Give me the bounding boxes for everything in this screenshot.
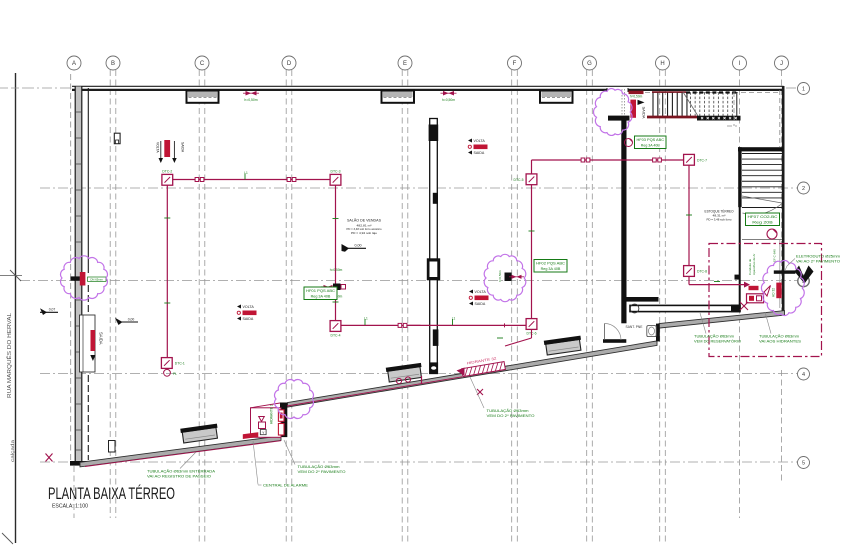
svg-text:PLANTA BAIXA TÉRREO: PLANTA BAIXA TÉRREO xyxy=(48,484,175,503)
svg-text:TUBULAÇÃO Ø63mm: TUBULAÇÃO Ø63mm xyxy=(759,334,799,339)
svg-text:2: 2 xyxy=(802,186,805,192)
svg-text:VEM DO 2º PAVIMENTO: VEM DO 2º PAVIMENTO xyxy=(298,470,347,474)
svg-text:SALÃO DE VENDAS: SALÃO DE VENDAS xyxy=(347,218,381,223)
svg-text:SAIDA: SAIDA xyxy=(475,302,486,306)
svg-text:H: H xyxy=(660,61,664,67)
svg-text:VOLTA: VOLTA xyxy=(475,290,487,294)
svg-text:CENTRAL DE ALARME: CENTRAL DE ALARME xyxy=(263,484,309,488)
svg-text:Reg 20B: Reg 20B xyxy=(752,221,774,225)
svg-text:SAIDA: SAIDA xyxy=(243,317,254,321)
svg-text:HF03 PQS ABC: HF03 PQS ABC xyxy=(637,138,665,142)
svg-text:HF01 PQS ABC: HF01 PQS ABC xyxy=(306,289,336,293)
svg-text:L1: L1 xyxy=(244,171,248,175)
svg-text:4: 4 xyxy=(802,372,805,378)
svg-text:HD 32: HD 32 xyxy=(772,288,776,297)
svg-text:Reg 3A 40B: Reg 3A 40B xyxy=(641,144,661,148)
svg-text:C: C xyxy=(200,61,205,67)
svg-text:5: 5 xyxy=(802,461,805,467)
svg-text:VEM DO 2º PAVIMENTO: VEM DO 2º PAVIMENTO xyxy=(487,414,536,418)
svg-text:F: F xyxy=(513,61,517,67)
svg-text:DTC-4: DTC-4 xyxy=(331,334,341,338)
svg-text:0,07: 0,07 xyxy=(49,308,56,312)
svg-text:SAIDA: SAIDA xyxy=(181,142,185,153)
svg-text:L1: L1 xyxy=(364,317,368,321)
svg-text:VAI AO REGISTRO DE PASSEIO: VAI AO REGISTRO DE PASSEIO xyxy=(147,475,212,479)
svg-text:Reg 3A 40B: Reg 3A 40B xyxy=(541,267,562,271)
svg-text:TUBULAÇÃO Ø63mm: TUBULAÇÃO Ø63mm xyxy=(487,408,529,413)
svg-text:DN 65mm: DN 65mm xyxy=(90,277,103,281)
svg-text:Aparelhos de Ar: Aparelhos de Ar xyxy=(752,254,756,275)
svg-text:DTC-8: DTC-8 xyxy=(697,270,707,274)
svg-text:HF07 CO2-BC: HF07 CO2-BC xyxy=(748,215,779,219)
svg-text:VOLTA: VOLTA xyxy=(243,305,255,309)
svg-text:h=0,50m: h=0,50m xyxy=(442,98,455,102)
svg-text:J: J xyxy=(780,61,783,67)
svg-text:G: G xyxy=(587,61,592,67)
svg-text:DTC-1: DTC-1 xyxy=(175,362,185,366)
svg-text:DTC-3: DTC-3 xyxy=(331,169,341,173)
svg-text:calçada: calçada xyxy=(10,439,15,462)
svg-text:0,00: 0,00 xyxy=(128,317,135,321)
svg-text:TUBULAÇÃO Ø63mm: TUBULAÇÃO Ø63mm xyxy=(298,464,340,469)
svg-text:RUA MARQUÊS DO HERVAL: RUA MARQUÊS DO HERVAL xyxy=(5,313,13,398)
svg-text:0,00: 0,00 xyxy=(355,244,362,248)
svg-text:DTC-2: DTC-2 xyxy=(162,169,172,173)
svg-text:E: E xyxy=(403,61,407,67)
svg-text:VEM DO RESERVATÓRIO: VEM DO RESERVATÓRIO xyxy=(694,339,742,344)
svg-text:PL: PL xyxy=(173,372,177,376)
svg-text:TUBULAÇÃO Ø63mm ENTERRADA: TUBULAÇÃO Ø63mm ENTERRADA xyxy=(147,469,216,474)
svg-text:ELETRODUTO Ø25mm: ELETRODUTO Ø25mm xyxy=(796,255,840,259)
svg-text:ESCALA: 1:100: ESCALA: 1:100 xyxy=(52,504,88,510)
svg-text:h=0,50m: h=0,50m xyxy=(330,268,343,272)
svg-text:TUBULAÇÃO Ø63mm: TUBULAÇÃO Ø63mm xyxy=(694,334,734,339)
svg-text:h=0,50m: h=0,50m xyxy=(630,95,643,99)
svg-text:HIDRANTE 1: HIDRANTE 1 xyxy=(270,404,274,424)
svg-text:SAIDA: SAIDA xyxy=(642,107,647,119)
svg-text:VAI AOS HIDRANTES: VAI AOS HIDRANTES xyxy=(759,340,802,344)
svg-text:SAIDA: SAIDA xyxy=(99,332,104,345)
svg-text:1: 1 xyxy=(802,87,805,93)
svg-text:h=0,50m: h=0,50m xyxy=(244,98,257,102)
svg-text:PD = 3,48 sob forro: PD = 3,48 sob forro xyxy=(707,217,732,221)
svg-text:EF C-840: EF C-840 xyxy=(773,249,777,262)
svg-text:h=0,50m: h=0,50m xyxy=(498,270,502,282)
svg-text:A: A xyxy=(72,61,76,67)
svg-text:DTC-7: DTC-7 xyxy=(697,158,707,162)
svg-text:VOLTA: VOLTA xyxy=(474,139,486,143)
svg-text:VOLTA: VOLTA xyxy=(156,142,160,153)
svg-text:L1: L1 xyxy=(452,317,456,321)
svg-text:SANT. PNE: SANT. PNE xyxy=(626,325,644,329)
svg-text:A: A xyxy=(802,267,806,273)
svg-text:DTC-5: DTC-5 xyxy=(514,178,524,182)
svg-text:VAI AO 2º PAVIMENTO: VAI AO 2º PAVIMENTO xyxy=(796,260,841,264)
svg-text:B: B xyxy=(111,61,115,67)
svg-text:SAIDA: SAIDA xyxy=(474,151,485,155)
svg-text:Reg 3A 40B: Reg 3A 40B xyxy=(311,295,332,299)
svg-text:D: D xyxy=(287,61,292,67)
svg-text:HF02 PQS ABC: HF02 PQS ABC xyxy=(536,262,566,266)
svg-text:PD = 4,94 sob laje: PD = 4,94 sob laje xyxy=(351,231,377,235)
